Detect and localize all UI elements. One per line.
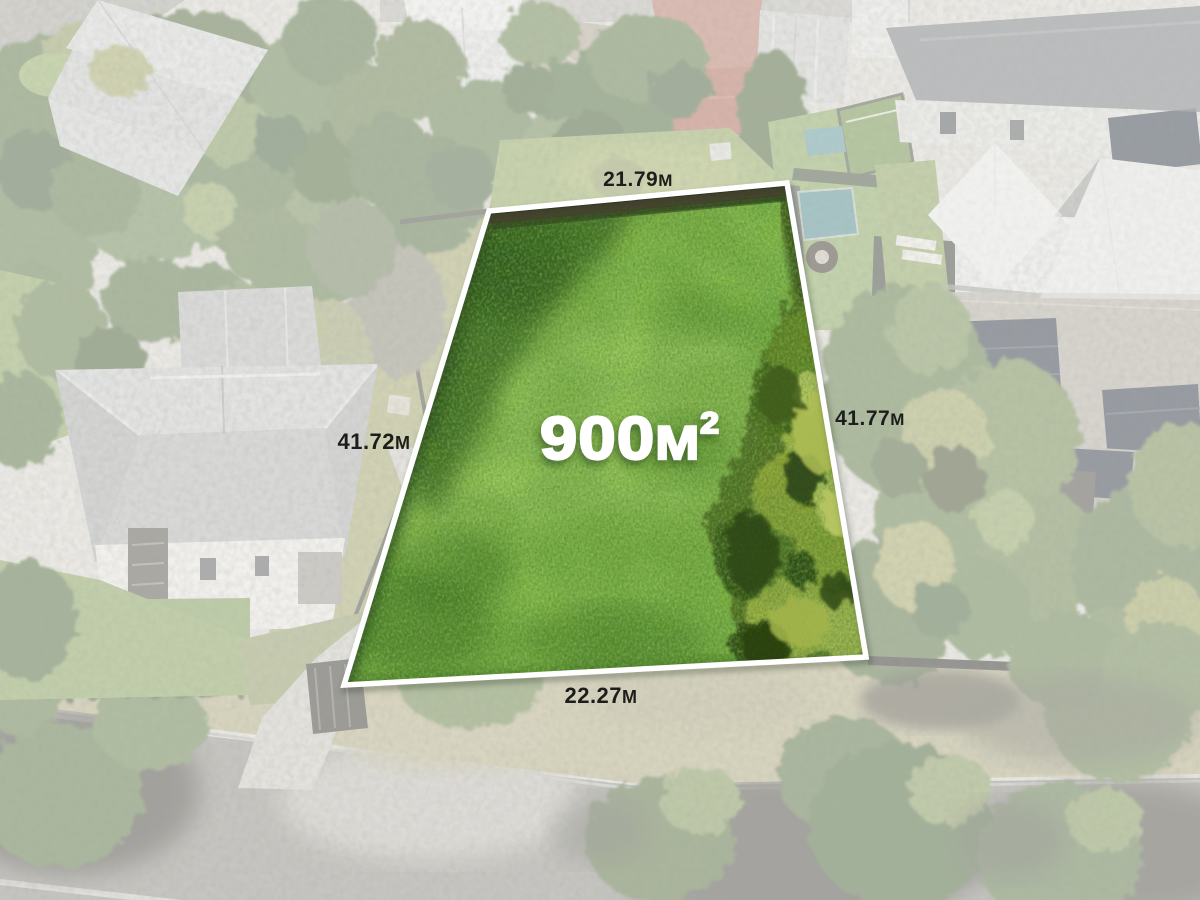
svg-text:41.77M: 41.77M — [835, 407, 905, 430]
svg-text:21.79M: 21.79M — [603, 168, 673, 191]
svg-text:41.72M: 41.72M — [337, 429, 410, 454]
svg-text:22.27M: 22.27M — [564, 683, 637, 708]
